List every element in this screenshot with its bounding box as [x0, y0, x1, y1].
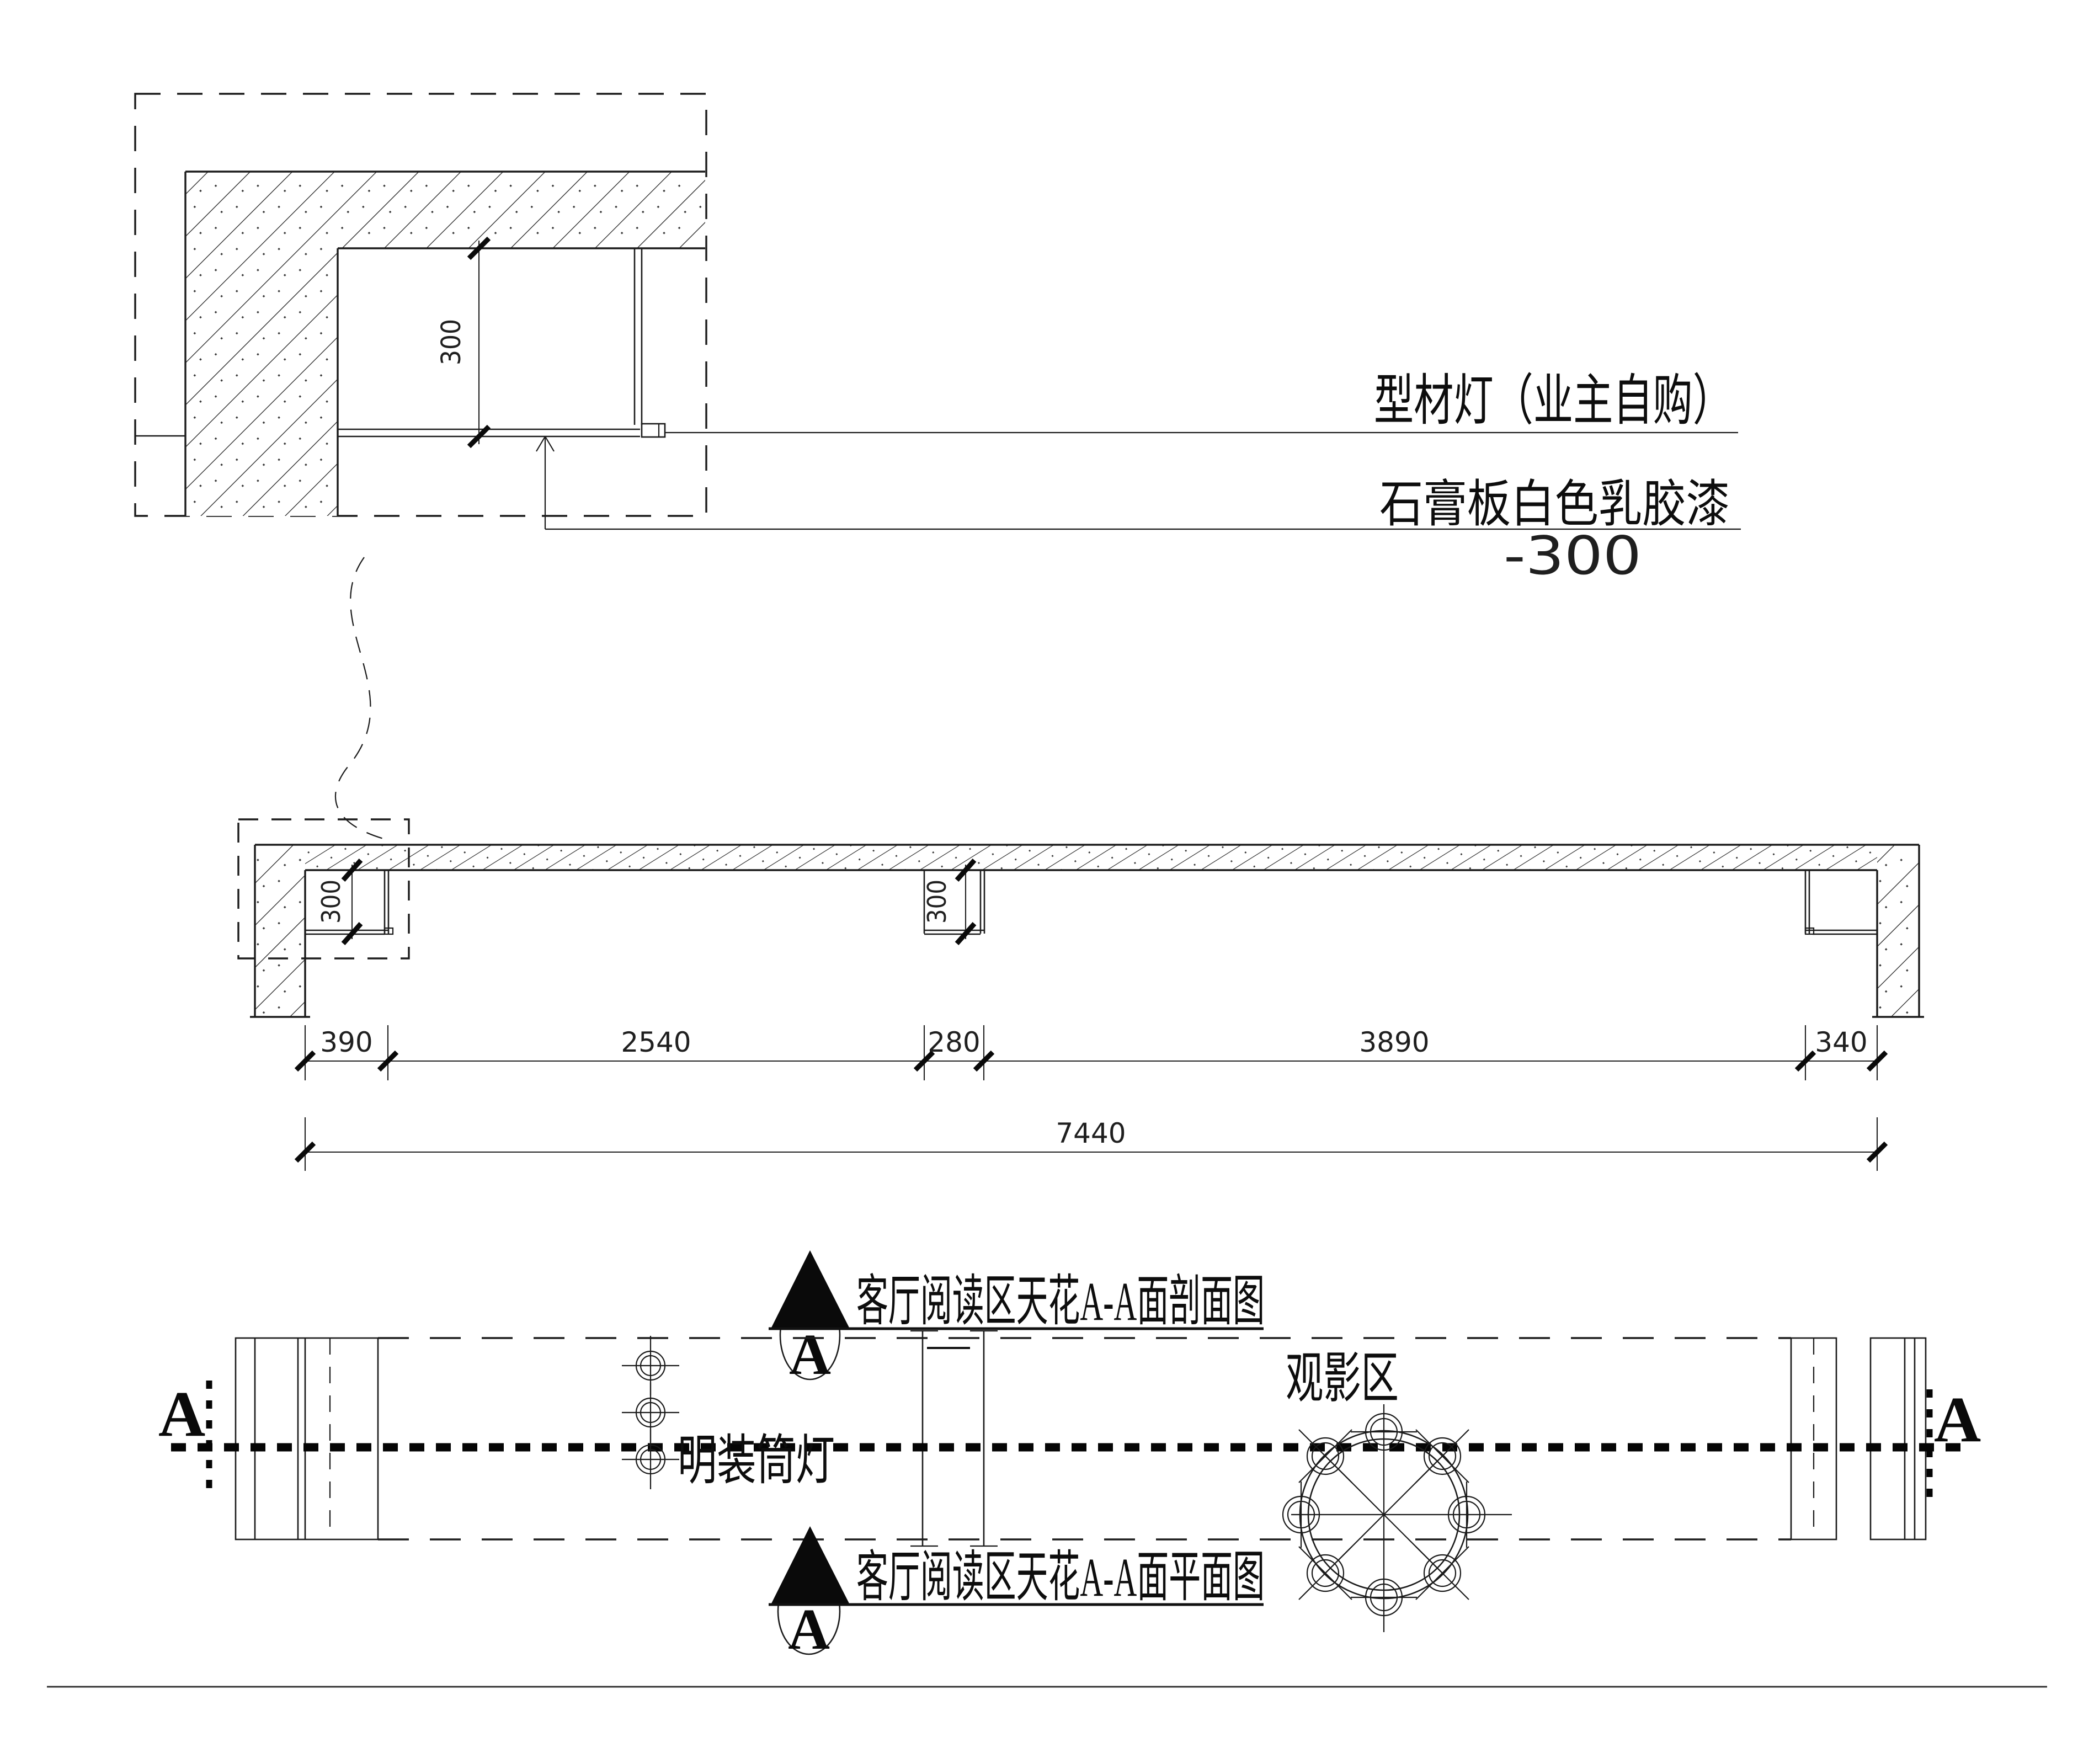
- right-wall-hatch: [1877, 845, 1919, 1017]
- section-title-marker: A 客厅阅读区天花A-A面剖面图: [769, 1250, 1265, 1387]
- left-wall-hatch: [255, 845, 305, 1017]
- light-cove-recess-1: 300: [305, 860, 393, 944]
- plan-right-band: [1791, 1338, 1836, 1539]
- lamp-bulb-icon: [1299, 1547, 1352, 1600]
- lamp-bulb-icon: [1351, 1414, 1417, 1450]
- label-level-minus300: -300: [1504, 526, 1642, 587]
- dim-340: 340: [1815, 1026, 1867, 1058]
- detail-dim-300: 300: [436, 238, 489, 446]
- plan-right-block: [1871, 1338, 1926, 1539]
- plan-title: 客厅阅读区天花A-A面平面图: [856, 1547, 1265, 1608]
- dim-row-segments: 390 2540 280 3890 340: [296, 1025, 1886, 1080]
- plan-middle-strip: [910, 1331, 998, 1546]
- section-title: 客厅阅读区天花A-A面剖面图: [856, 1271, 1265, 1332]
- ceiling-detail-drawing: 300 型材灯（业主自购） 石膏板白色乳胶漆 -300: [0, 0, 2094, 1764]
- plan-left-block: [236, 1338, 378, 1539]
- dim-280: 280: [928, 1026, 980, 1058]
- round-lamp-icon: [1283, 1404, 1512, 1632]
- cut-letter-left: A: [158, 1378, 205, 1450]
- drawing-sheet: 300 型材灯（业主自购） 石膏板白色乳胶漆 -300: [0, 0, 2094, 1764]
- slab-hatch-band: [255, 845, 1919, 870]
- section-cut-triangle-icon: [771, 1250, 850, 1329]
- zone-label: 观影区: [1286, 1348, 1399, 1409]
- detail-callout-view: 300 型材灯（业主自购） 石膏板白色乳胶漆 -300: [135, 94, 1741, 839]
- recess2-dim-label: 300: [922, 880, 952, 924]
- lamp-bulb-icon: [1299, 1430, 1352, 1483]
- section-cut-triangle-icon: [771, 1526, 850, 1605]
- label-gypsum-paint: 石膏板白色乳胶漆: [1379, 476, 1730, 532]
- recess1-dim-label: 300: [316, 880, 346, 924]
- dim-2540: 2540: [621, 1026, 691, 1058]
- lamp-bulb-icon: [1448, 1481, 1485, 1548]
- plan-marker-letter: A: [788, 1597, 830, 1661]
- lamp-bulb-icon: [1416, 1430, 1469, 1483]
- cut-letter-right: A: [1934, 1383, 1981, 1456]
- lamp-bulb-icon: [1351, 1579, 1417, 1616]
- light-cove-recess-3: [1805, 870, 1877, 934]
- plan-title-marker: A 客厅阅读区天花A-A面平面图: [769, 1526, 1265, 1661]
- detail-dim-300-label: 300: [436, 319, 467, 365]
- downlight-icon: [622, 1430, 679, 1489]
- lamp-bulb-icon: [1283, 1481, 1319, 1548]
- light-cove-recess-2: 300: [922, 860, 984, 944]
- dim-7440: 7440: [1056, 1117, 1126, 1149]
- dim-3890: 3890: [1359, 1026, 1429, 1058]
- section-view: 300 300: [238, 819, 1924, 1171]
- dim-row-total: 7440: [296, 1117, 1886, 1171]
- profile-light-fixture-icon: [642, 424, 665, 437]
- label-profile-light: 型材灯（业主自购）: [1374, 370, 1733, 431]
- dim-390: 390: [320, 1026, 372, 1058]
- section-marker-letter: A: [789, 1322, 831, 1387]
- downlight-label: 明装筒灯: [678, 1431, 835, 1491]
- lamp-bulb-icon: [1416, 1547, 1469, 1600]
- detail-reference-curve: [335, 557, 383, 839]
